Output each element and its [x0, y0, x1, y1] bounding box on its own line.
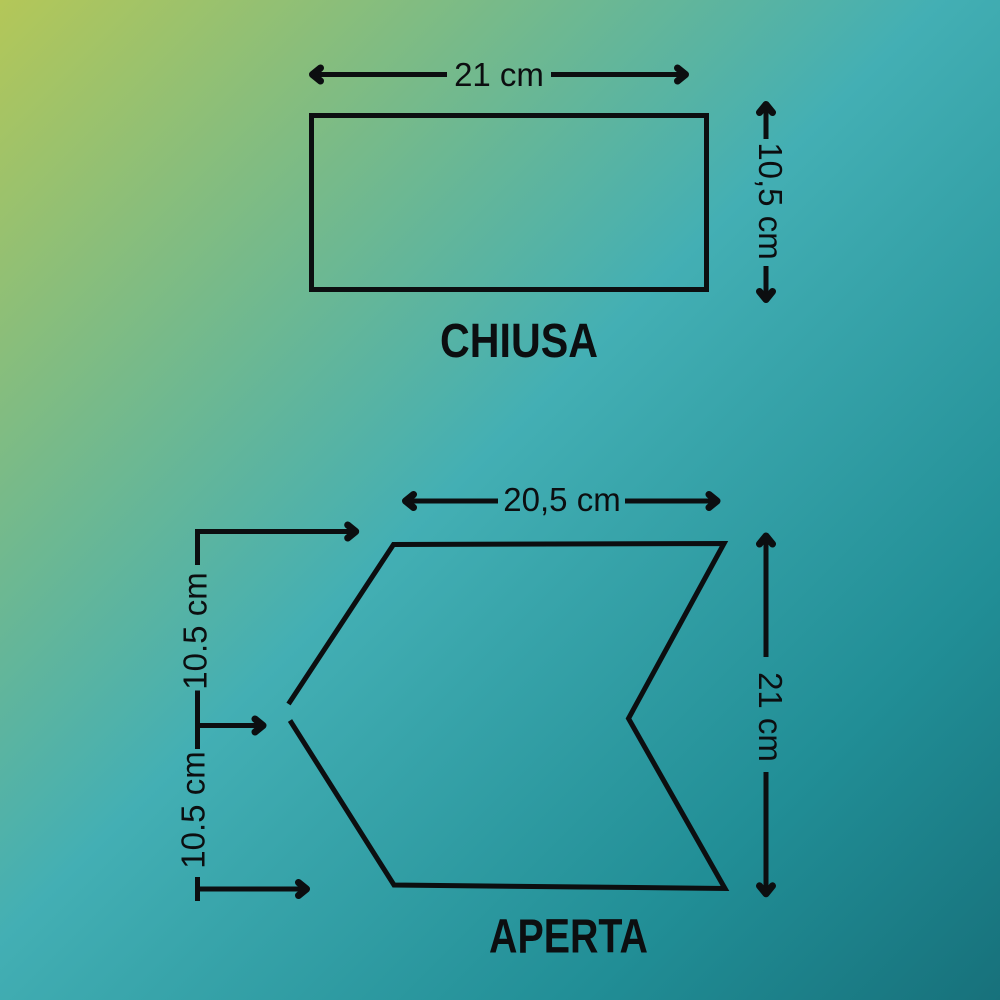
svg-text:21 cm: 21 cm: [752, 672, 789, 762]
svg-text:10.5 cm: 10.5 cm: [177, 572, 214, 689]
svg-text:APERTA: APERTA: [489, 911, 648, 964]
svg-text:10,5 cm: 10,5 cm: [752, 142, 789, 259]
svg-text:20,5 cm: 20,5 cm: [503, 481, 620, 518]
svg-text:CHIUSA: CHIUSA: [440, 315, 598, 368]
svg-text:10.5 cm: 10.5 cm: [175, 751, 212, 868]
svg-text:21 cm: 21 cm: [454, 56, 544, 93]
